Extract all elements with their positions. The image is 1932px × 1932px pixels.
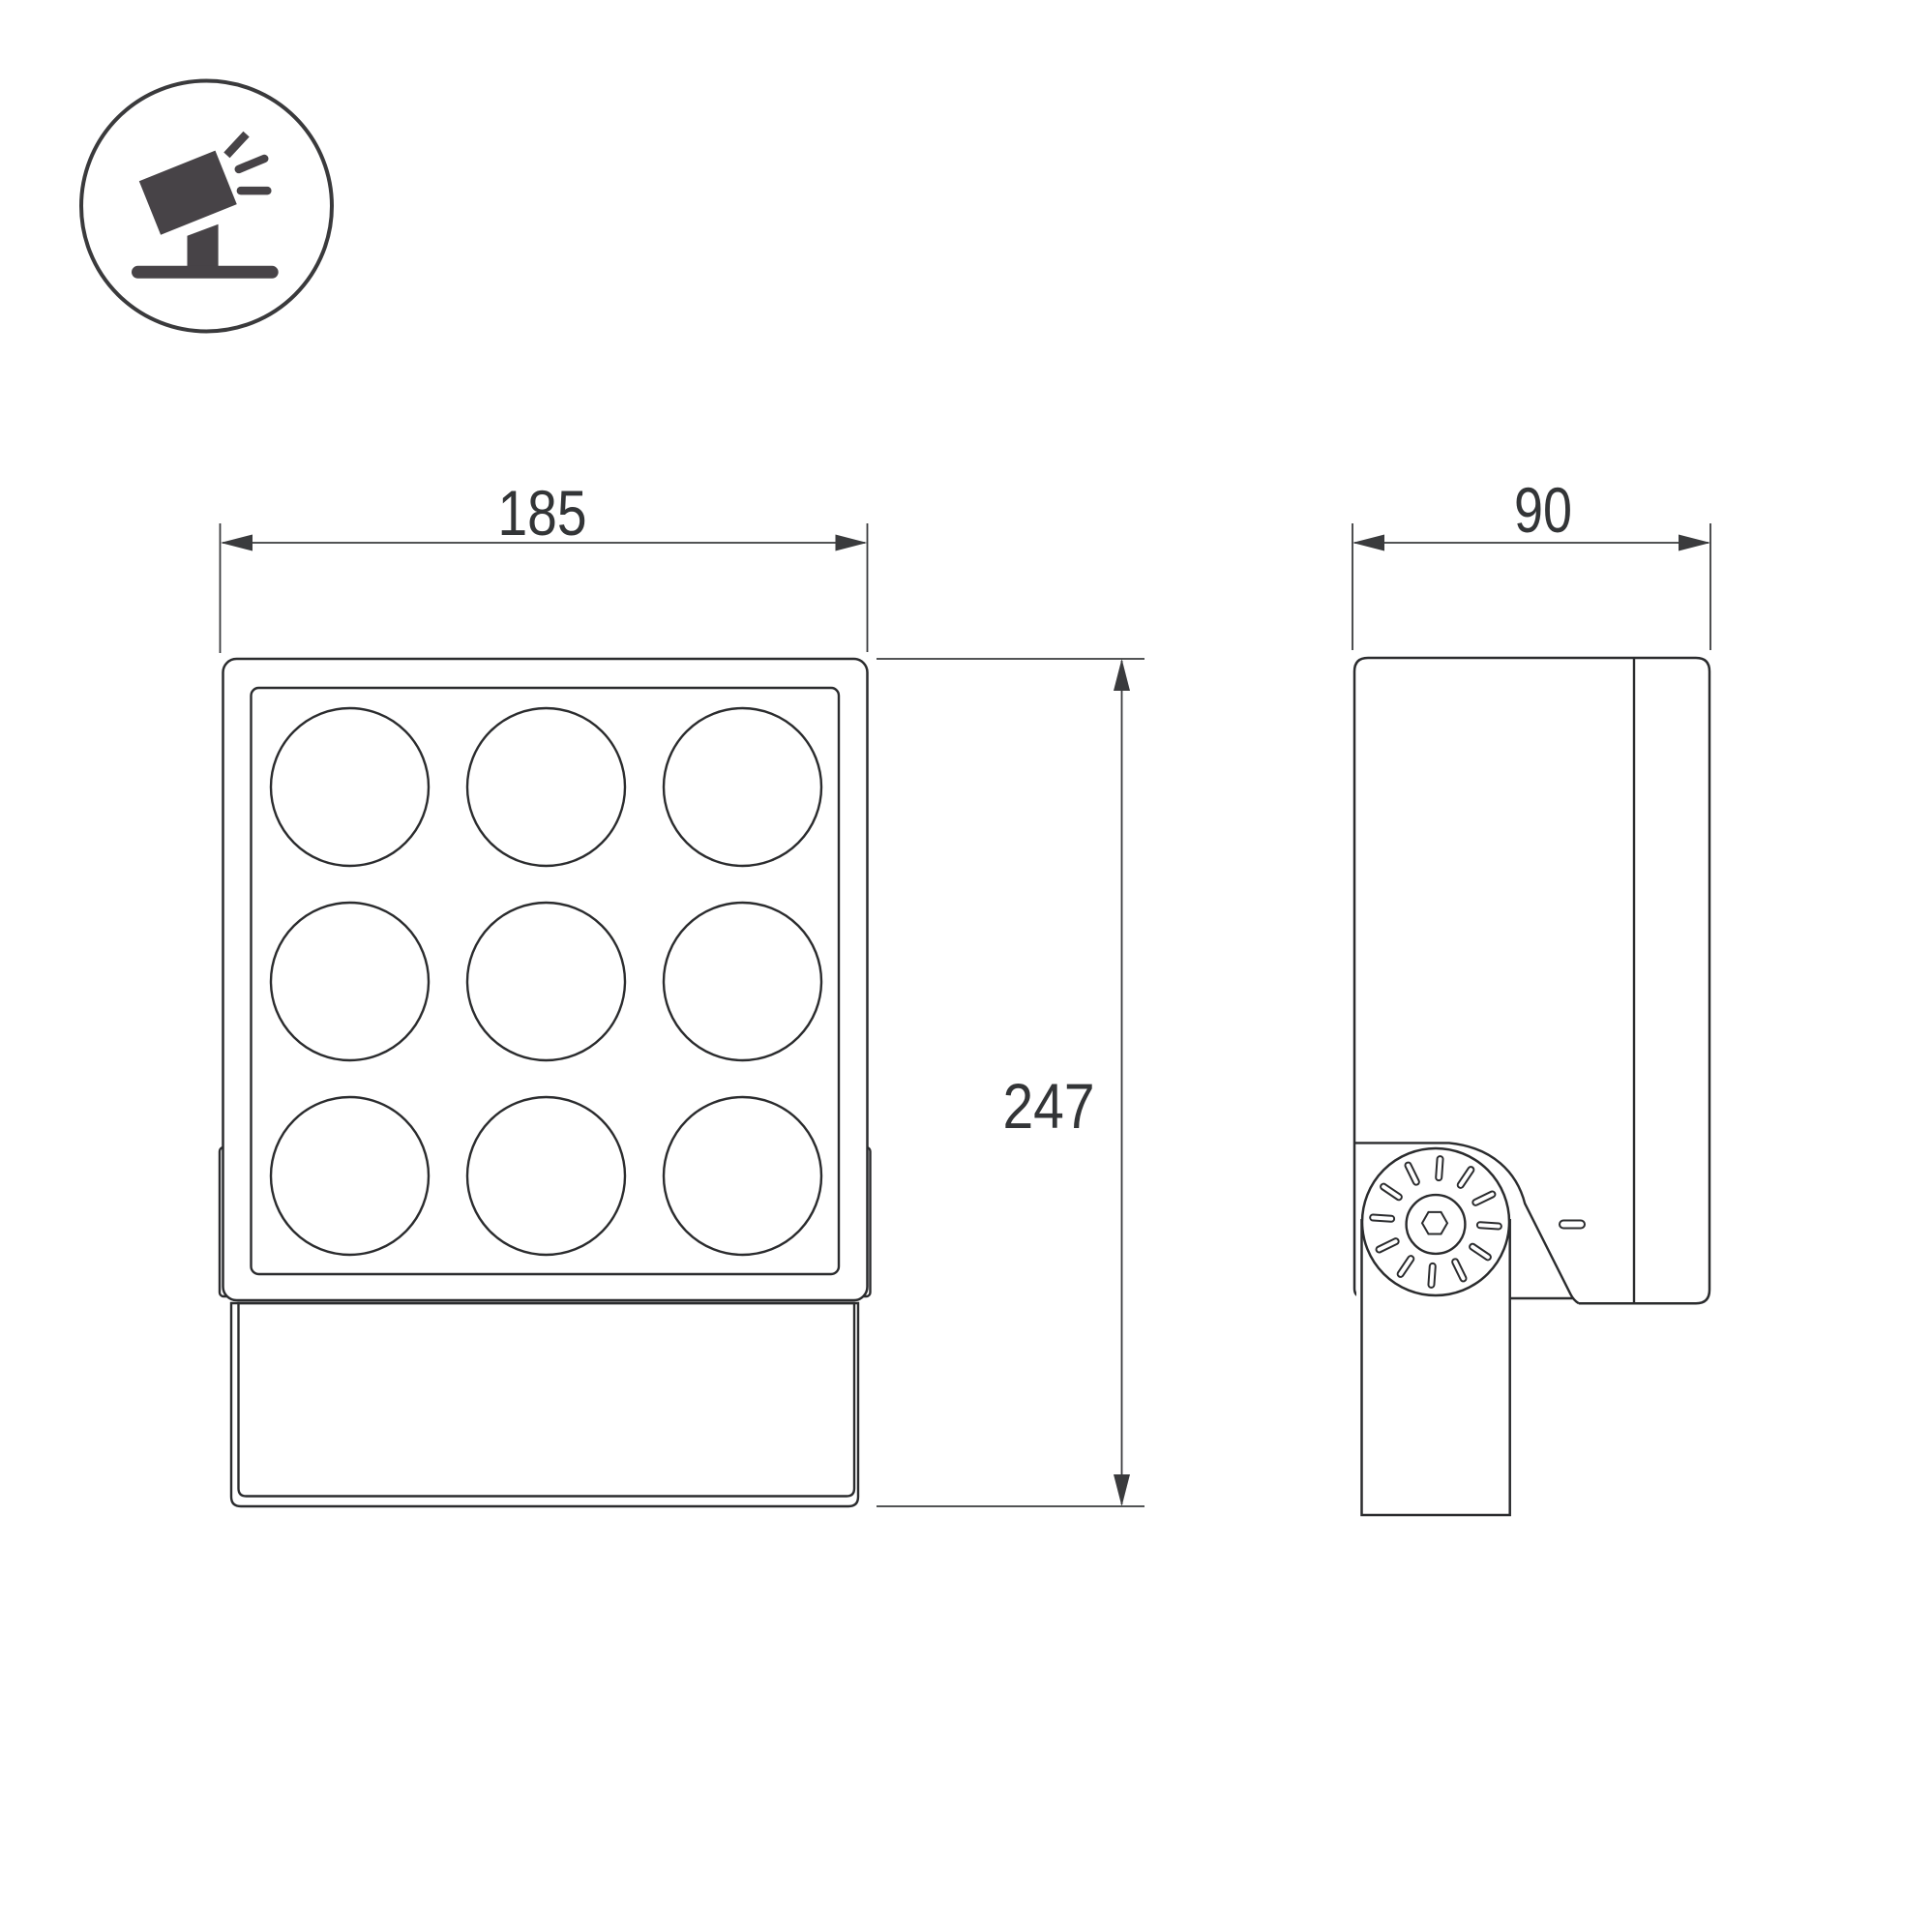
svg-text:90: 90 xyxy=(1514,474,1572,546)
svg-text:247: 247 xyxy=(1003,1070,1095,1142)
svg-text:185: 185 xyxy=(498,477,587,549)
